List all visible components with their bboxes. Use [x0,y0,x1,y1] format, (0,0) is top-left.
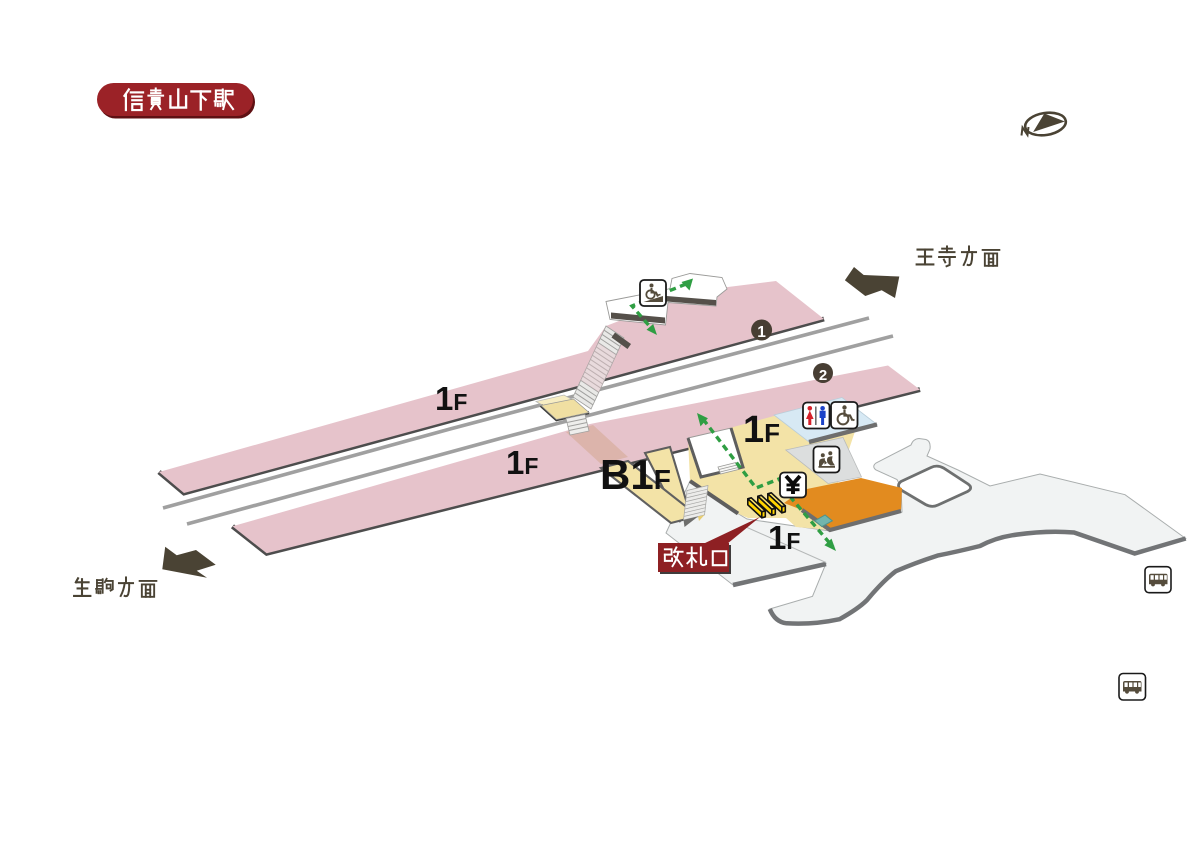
svg-text:2: 2 [819,367,827,384]
svg-text:1: 1 [757,324,766,341]
svg-text:1F: 1F [435,380,467,417]
